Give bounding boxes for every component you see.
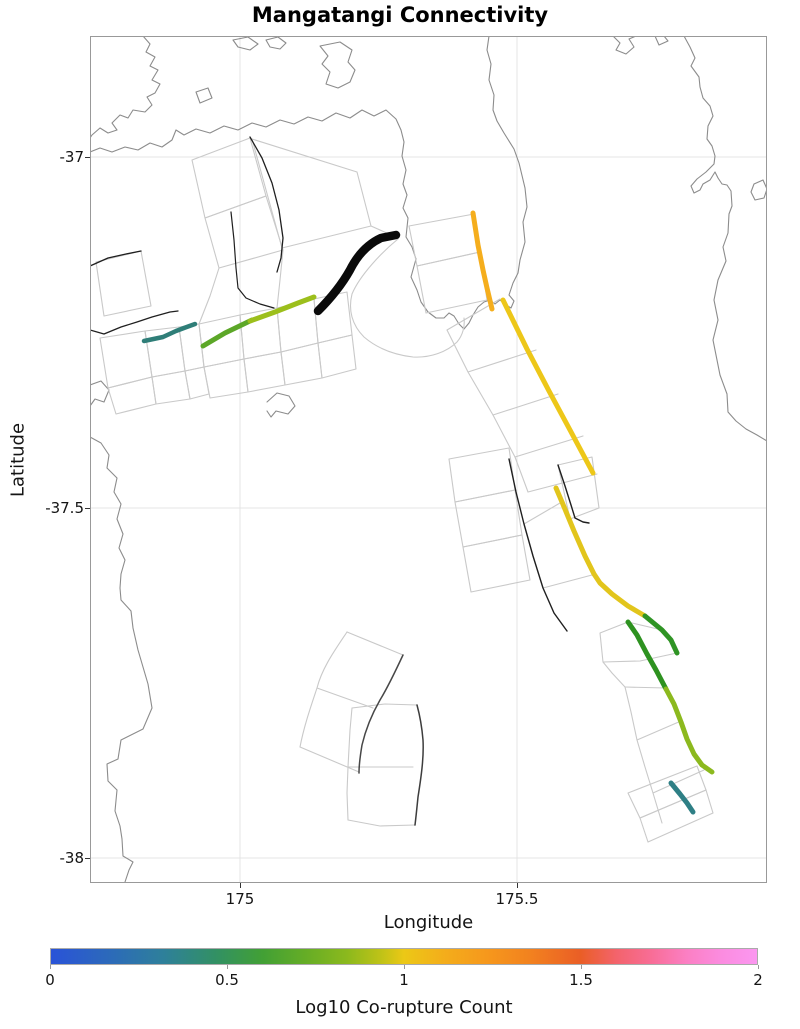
fault-section-outline [455, 490, 522, 547]
fault-trace-dark [231, 212, 274, 308]
coastline [90, 36, 160, 138]
fault-trace-dark [558, 465, 589, 523]
x-tick-mark [517, 883, 518, 888]
fault-section-outline [449, 448, 515, 502]
yellow-trace-south [556, 488, 645, 616]
colorbar-tick-label: 0.5 [215, 971, 239, 989]
colorbar-tick-mark [227, 965, 228, 969]
olive-trace-west-1 [203, 320, 252, 346]
fault-section-outline [603, 662, 662, 823]
coastline [233, 37, 258, 50]
fault-section-outline [524, 503, 560, 524]
fault-section-outline [347, 632, 403, 655]
colorbar-tick-mark [758, 965, 759, 969]
coastline [90, 36, 527, 329]
olive-trace-west-2 [250, 297, 314, 321]
fault-section-outline [244, 352, 285, 392]
coastline [320, 42, 355, 88]
fault-trace-dark [90, 311, 178, 334]
green-trace-long [628, 622, 666, 689]
colorbar-tick-label: 0 [45, 971, 55, 989]
coastline [90, 437, 152, 882]
coastline [655, 36, 668, 45]
green-hook-trace [645, 616, 677, 653]
fault-trace-dark [359, 655, 403, 773]
teal-trace-west [144, 324, 195, 341]
fault-section-outline [152, 371, 190, 404]
map-svg [90, 36, 767, 883]
x-tick-label: 175 [226, 890, 255, 908]
fault-section-outline [409, 214, 480, 266]
fault-trace-dark [415, 705, 423, 825]
coastline [266, 37, 286, 49]
colorbar [50, 948, 758, 965]
fault-section-outline [300, 747, 359, 772]
fault-section-outline [543, 575, 592, 588]
colorbar-tick-mark [404, 965, 405, 969]
fault-section-outline [447, 330, 528, 492]
y-tick-label: -38 [0, 849, 84, 867]
x-tick-label: 175.5 [496, 890, 539, 908]
coastline [267, 393, 295, 417]
fault-section-outline [463, 535, 530, 592]
y-tick-mark [85, 508, 90, 509]
colorbar-tick-label: 1.5 [569, 971, 593, 989]
y-tick-label: -37 [0, 148, 84, 166]
coastline [90, 381, 109, 406]
fault-section-outline [281, 343, 322, 385]
colorbar-tick-label: 1 [399, 971, 409, 989]
fault-section-outline [417, 252, 487, 313]
fault-section-outline [347, 708, 352, 820]
colorbar-label: Log10 Co-rupture Count [50, 997, 758, 1018]
fault-section-outline [348, 820, 415, 826]
coastline [684, 36, 767, 441]
plot-title: Mangatangi Connectivity [0, 3, 800, 27]
fault-section-outline [199, 268, 219, 324]
coastline [751, 180, 767, 200]
fault-section-outline [352, 704, 417, 708]
yellowgreen-trace-long [666, 689, 712, 772]
fault-section-outline [493, 394, 558, 415]
fault-section-outline [199, 315, 244, 367]
thick-black-fault [318, 235, 396, 311]
fault-section-outline [96, 251, 151, 316]
coastline [196, 88, 212, 103]
y-tick-mark [85, 858, 90, 859]
colorbar-tick-mark [581, 965, 582, 969]
fault-section-outline [351, 239, 465, 357]
fault-section-outline [252, 139, 371, 248]
colorbar-tick-label: 2 [753, 971, 763, 989]
fault-section-outline [637, 721, 681, 740]
fault-section-outline [318, 335, 356, 378]
fault-section-outline [640, 790, 713, 842]
fault-section-outline [625, 687, 666, 688]
x-tick-mark [240, 883, 241, 888]
fault-section-outline [277, 250, 283, 308]
fault-section-outline [108, 377, 156, 414]
y-tick-label: -37.5 [0, 499, 84, 517]
x-axis-label: Longitude [90, 912, 767, 933]
fault-section-outline [317, 688, 373, 708]
fault-section-outline [468, 350, 536, 372]
y-tick-mark [85, 157, 90, 158]
orange-trace-north [473, 213, 492, 309]
colorbar-tick-mark [50, 965, 51, 969]
figure: Mangatangi Connectivity Latitude 175175.… [0, 0, 800, 1029]
y-axis-label: Latitude [8, 423, 29, 497]
plot-border [91, 37, 767, 883]
fault-section-outline [204, 359, 248, 398]
fault-section-outline [205, 196, 283, 268]
fault-trace-dark [509, 459, 567, 631]
coastline [613, 36, 636, 54]
fault-section-outline [300, 632, 347, 747]
